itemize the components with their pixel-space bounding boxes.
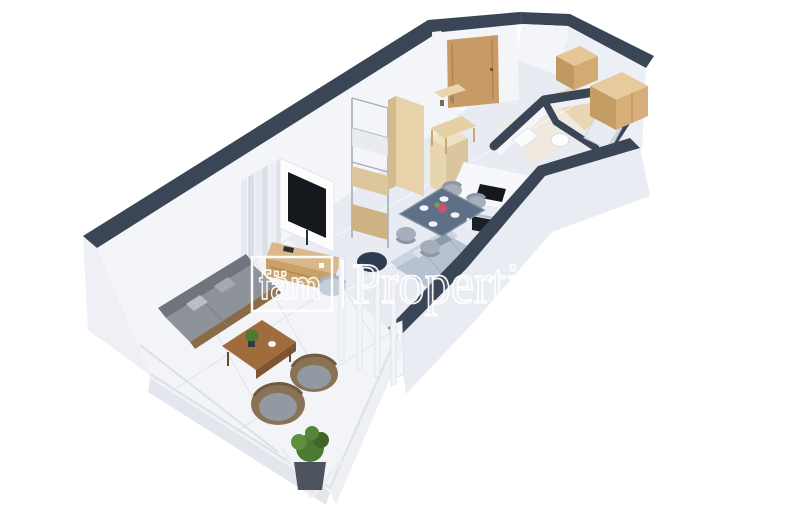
toilet xyxy=(551,134,569,147)
door-leaf xyxy=(447,35,499,108)
shelf-frame-decor xyxy=(450,96,454,102)
plant-foliage xyxy=(291,434,307,450)
plant-pot xyxy=(294,462,326,490)
curtain-panel xyxy=(269,161,275,254)
cabinet-side xyxy=(388,96,396,190)
curtain-panel xyxy=(262,165,268,258)
watermark-logo-dot xyxy=(319,263,324,268)
flower-leaves xyxy=(435,203,440,208)
tall-cabinet xyxy=(388,96,424,196)
door-grain xyxy=(452,44,453,104)
plate xyxy=(451,212,460,218)
entry-door xyxy=(447,35,499,108)
chair-cushion xyxy=(259,393,297,421)
door-handle xyxy=(490,68,493,71)
render-canvas: fäm Properties xyxy=(0,0,787,525)
curtain-panel xyxy=(255,169,261,262)
cabinet-front xyxy=(396,96,424,196)
watermark-logo-text: fäm xyxy=(259,264,321,308)
watermark-wordmark: Properties xyxy=(352,251,564,316)
chair-cushion xyxy=(297,365,331,389)
wicker-chair xyxy=(251,383,305,425)
curtain-panel xyxy=(248,173,254,266)
table-decor xyxy=(268,341,276,347)
plant-pot xyxy=(248,341,255,347)
plate xyxy=(440,196,449,202)
plant-foliage xyxy=(305,426,319,440)
plate xyxy=(420,205,429,211)
table-plant xyxy=(246,330,259,343)
wicker-chair xyxy=(290,355,338,392)
plate xyxy=(429,221,438,227)
floor-plan-render: fäm Properties xyxy=(0,0,787,525)
dining-chair xyxy=(396,227,416,242)
shelf-frame-decor xyxy=(440,100,444,106)
